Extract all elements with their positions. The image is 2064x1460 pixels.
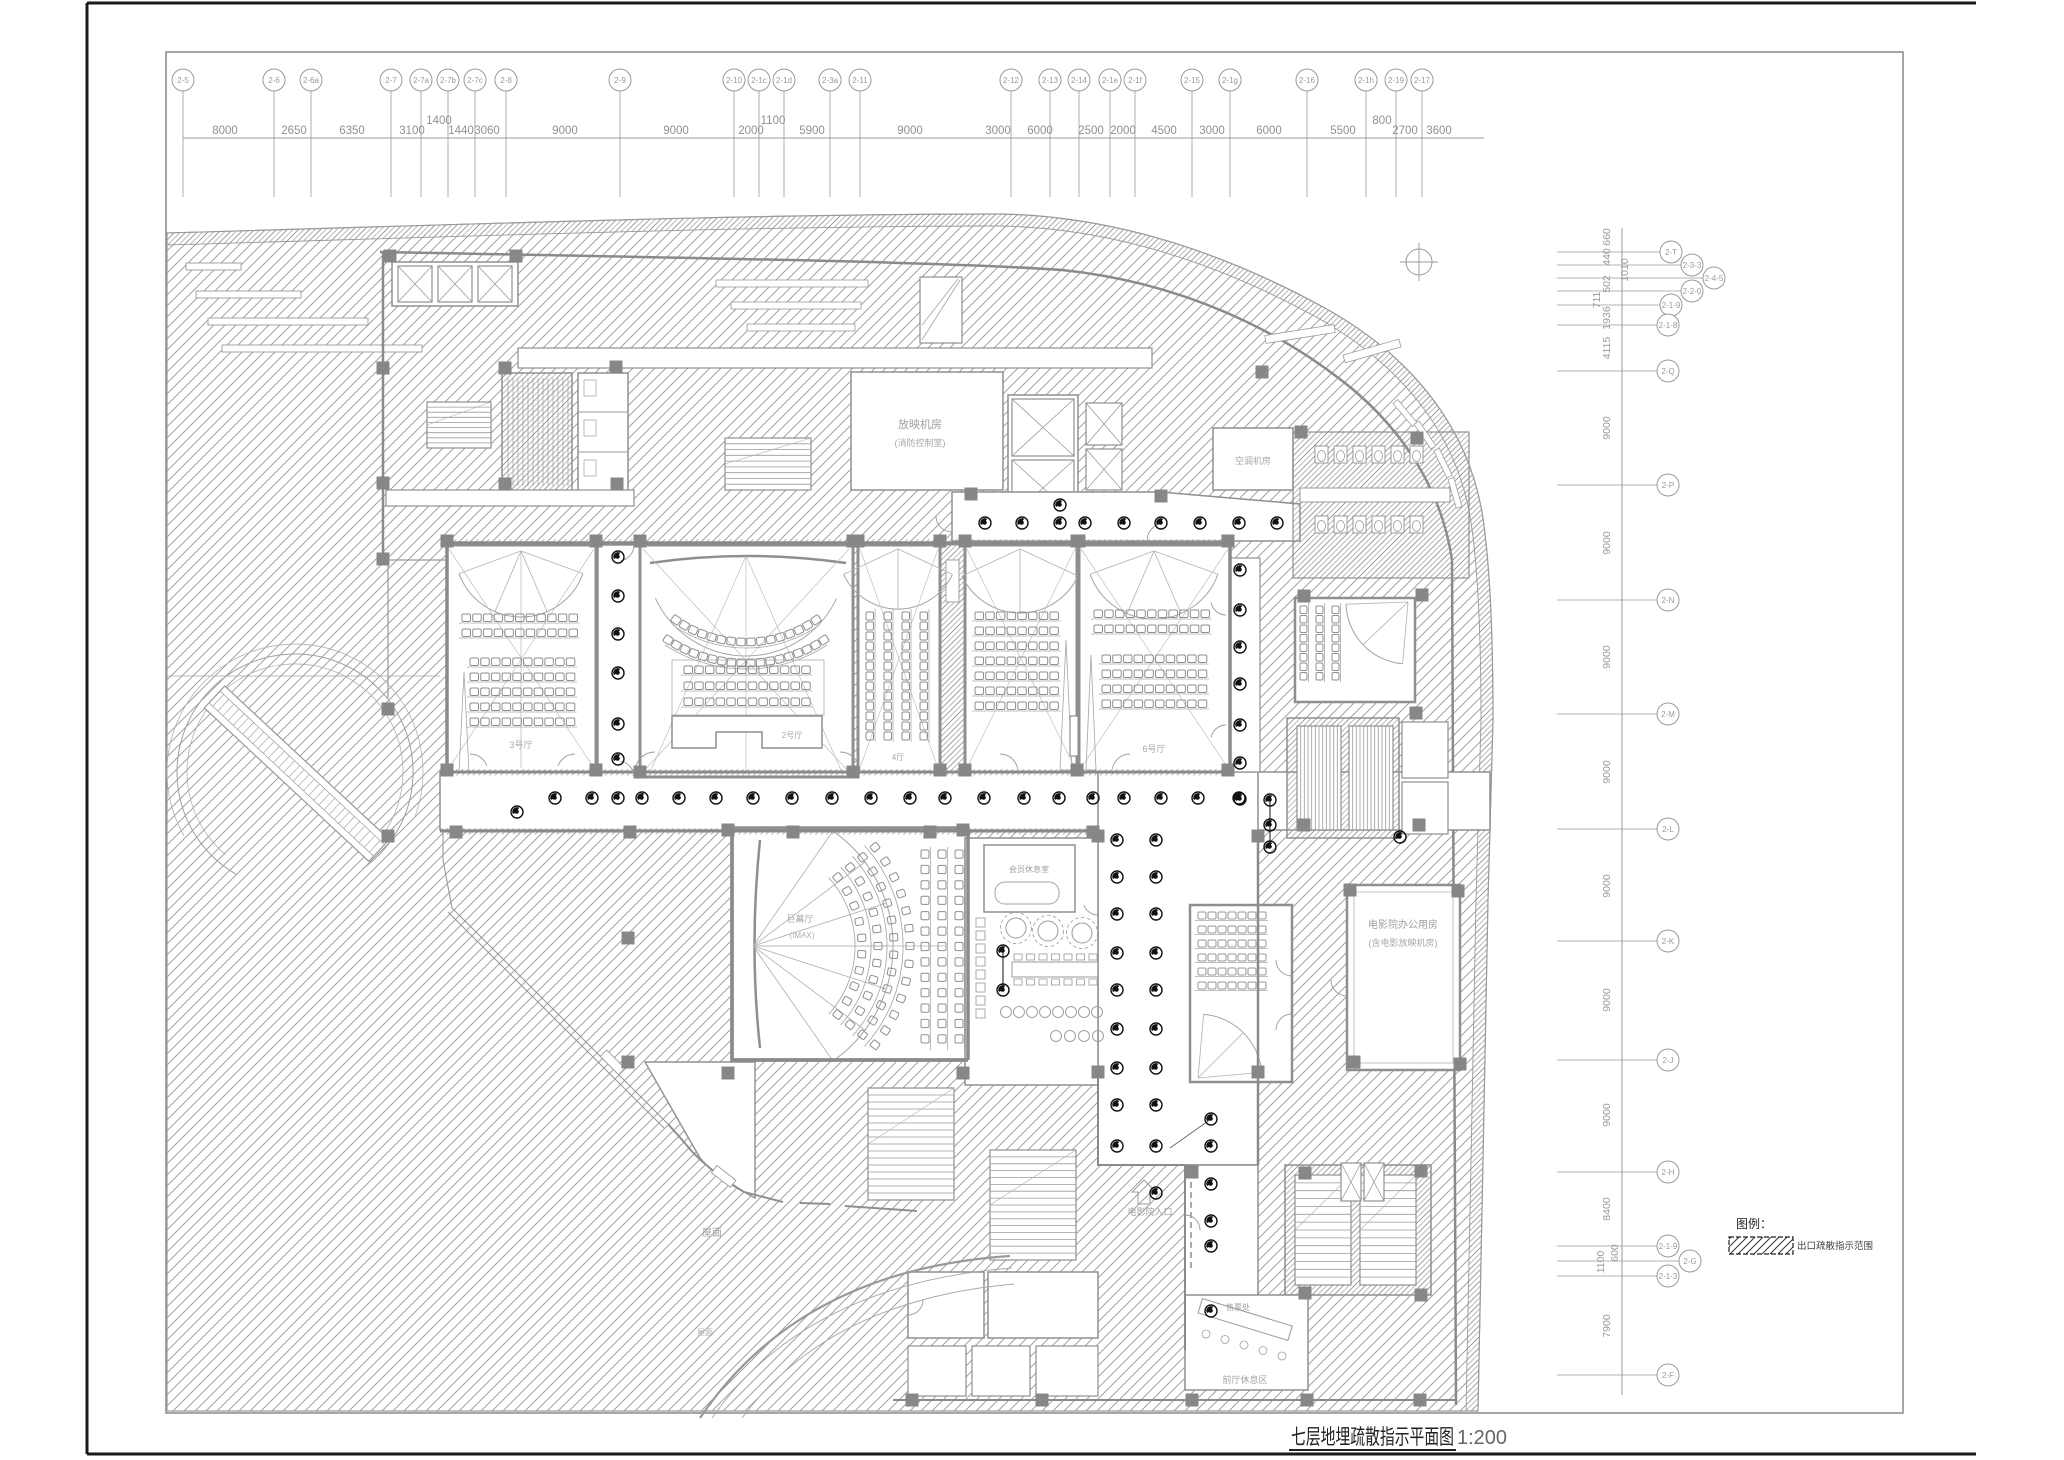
svg-text:1010: 1010 xyxy=(1619,258,1631,282)
svg-text:3000: 3000 xyxy=(985,125,1011,137)
svg-text:2-K: 2-K xyxy=(1662,937,1675,946)
svg-text:2-10: 2-10 xyxy=(726,76,743,85)
svg-text:1:200: 1:200 xyxy=(1457,1427,1507,1449)
svg-text:2-12: 2-12 xyxy=(1003,76,1020,85)
svg-text:6350: 6350 xyxy=(339,125,365,137)
svg-text:3600: 3600 xyxy=(1426,125,1452,137)
svg-text:2-5: 2-5 xyxy=(177,76,189,85)
svg-text:800: 800 xyxy=(1372,115,1391,127)
svg-text:2-4-5: 2-4-5 xyxy=(1705,274,1724,283)
svg-text:2500: 2500 xyxy=(1078,125,1104,137)
svg-text:巨幕厅: 巨幕厅 xyxy=(786,913,813,924)
svg-text:4厅: 4厅 xyxy=(892,753,904,762)
svg-text:9000: 9000 xyxy=(1601,874,1613,898)
svg-text:1100: 1100 xyxy=(761,115,786,127)
svg-text:2-7c: 2-7c xyxy=(467,76,483,85)
svg-text:屋面: 屋面 xyxy=(697,1328,713,1337)
svg-text:2号厅: 2号厅 xyxy=(782,731,802,740)
svg-text:440: 440 xyxy=(1601,248,1613,266)
svg-text:8000: 8000 xyxy=(212,125,238,137)
svg-text:711: 711 xyxy=(1591,291,1603,308)
svg-text:2-1h: 2-1h xyxy=(1358,76,1374,85)
svg-text:2-H: 2-H xyxy=(1662,1168,1675,1177)
svg-text:2-15: 2-15 xyxy=(1184,76,1201,85)
svg-text:2-1c: 2-1c xyxy=(751,76,767,85)
svg-text:1100: 1100 xyxy=(1595,1251,1607,1274)
svg-text:9000: 9000 xyxy=(1601,988,1613,1012)
svg-text:2-M: 2-M xyxy=(1661,710,1675,719)
svg-text:2-G: 2-G xyxy=(1683,1257,1696,1266)
svg-text:2700: 2700 xyxy=(1392,125,1418,137)
svg-text:2-J: 2-J xyxy=(1662,1056,1673,1065)
svg-text:9000: 9000 xyxy=(1601,531,1613,555)
svg-text:5500: 5500 xyxy=(1330,125,1356,137)
svg-text:7900: 7900 xyxy=(1601,1314,1613,1338)
svg-text:2-13: 2-13 xyxy=(1042,76,1059,85)
svg-text:3号厅: 3号厅 xyxy=(509,740,532,750)
svg-text:2-7a: 2-7a xyxy=(413,76,430,85)
svg-text:(含电影放映机房): (含电影放映机房) xyxy=(1369,937,1438,948)
svg-text:2000: 2000 xyxy=(1110,125,1136,137)
svg-text:空调机房: 空调机房 xyxy=(1235,455,1271,466)
svg-text:2-7: 2-7 xyxy=(385,76,397,85)
svg-text:2-1-8: 2-1-8 xyxy=(1659,321,1678,330)
svg-text:2-1-3: 2-1-3 xyxy=(1659,1272,1678,1281)
svg-text:(IMAX): (IMAX) xyxy=(790,931,815,940)
svg-text:2-6: 2-6 xyxy=(268,76,280,85)
svg-text:2-1-9: 2-1-9 xyxy=(1662,301,1681,310)
svg-text:4115: 4115 xyxy=(1601,337,1613,360)
svg-text:2-7b: 2-7b xyxy=(440,76,457,85)
svg-text:七层地埋疏散指示平面图: 七层地埋疏散指示平面图 xyxy=(1291,1426,1454,1449)
svg-text:660: 660 xyxy=(1601,228,1613,246)
svg-text:9000: 9000 xyxy=(1601,416,1613,440)
svg-text:3060: 3060 xyxy=(474,125,500,137)
svg-text:5900: 5900 xyxy=(799,125,825,137)
svg-text:9000: 9000 xyxy=(1601,760,1613,784)
svg-text:600: 600 xyxy=(1609,1244,1621,1262)
svg-text:电影院入口: 电影院入口 xyxy=(1127,1206,1172,1217)
svg-text:3100: 3100 xyxy=(399,125,425,137)
svg-text:2-1e: 2-1e xyxy=(1102,76,1119,85)
svg-text:1440: 1440 xyxy=(448,125,474,137)
svg-text:2-1g: 2-1g xyxy=(1222,76,1238,85)
svg-text:放映机房: 放映机房 xyxy=(898,417,942,431)
svg-text:2-3a: 2-3a xyxy=(822,76,839,85)
svg-text:6000: 6000 xyxy=(1256,125,1282,137)
svg-text:2-T: 2-T xyxy=(1665,248,1677,257)
svg-text:图例：: 图例： xyxy=(1736,1217,1772,1231)
svg-text:售票处: 售票处 xyxy=(1226,1302,1250,1312)
svg-text:502: 502 xyxy=(1601,275,1613,293)
svg-text:4500: 4500 xyxy=(1151,125,1177,137)
svg-text:9000: 9000 xyxy=(663,125,689,137)
svg-text:电影院办公用房: 电影院办公用房 xyxy=(1368,918,1438,931)
svg-text:9000: 9000 xyxy=(552,125,578,137)
svg-text:前厅休息区: 前厅休息区 xyxy=(1222,1374,1267,1385)
svg-text:2-F: 2-F xyxy=(1662,1371,1674,1380)
svg-text:2-L: 2-L xyxy=(1662,825,1674,834)
svg-text:3000: 3000 xyxy=(1199,125,1225,137)
svg-text:2-1-9: 2-1-9 xyxy=(1659,1242,1678,1251)
svg-text:2-16: 2-16 xyxy=(1299,76,1316,85)
svg-text:2-N: 2-N xyxy=(1662,596,1675,605)
svg-text:6000: 6000 xyxy=(1027,125,1053,137)
svg-text:会员休息室: 会员休息室 xyxy=(1009,864,1049,874)
svg-text:2-2-0: 2-2-0 xyxy=(1683,287,1702,296)
svg-text:2-Q: 2-Q xyxy=(1661,367,1674,376)
svg-text:2-19: 2-19 xyxy=(1388,76,1405,85)
svg-text:2-1d: 2-1d xyxy=(776,76,792,85)
svg-text:2650: 2650 xyxy=(281,125,307,137)
svg-text:2-6a: 2-6a xyxy=(303,76,320,85)
svg-text:9000: 9000 xyxy=(897,125,923,137)
svg-text:2-17: 2-17 xyxy=(1414,76,1431,85)
svg-text:2-14: 2-14 xyxy=(1071,76,1088,85)
svg-text:9000: 9000 xyxy=(1601,645,1613,669)
svg-text:2-9: 2-9 xyxy=(614,76,626,85)
svg-text:2-3-3: 2-3-3 xyxy=(1683,261,1702,270)
svg-text:出口疏散指示范围: 出口疏散指示范围 xyxy=(1797,1240,1873,1252)
svg-text:2-1f: 2-1f xyxy=(1128,76,1143,85)
svg-text:2-8: 2-8 xyxy=(500,76,512,85)
svg-text:1936: 1936 xyxy=(1601,306,1613,330)
svg-text:2-11: 2-11 xyxy=(852,76,868,85)
svg-text:(消防控制室): (消防控制室) xyxy=(895,437,946,448)
svg-text:2-P: 2-P xyxy=(1662,481,1674,490)
svg-text:9000: 9000 xyxy=(1601,1103,1613,1127)
svg-text:屋面: 屋面 xyxy=(702,1227,722,1239)
svg-text:8400: 8400 xyxy=(1601,1197,1613,1221)
svg-text:6号厅: 6号厅 xyxy=(1142,744,1165,754)
